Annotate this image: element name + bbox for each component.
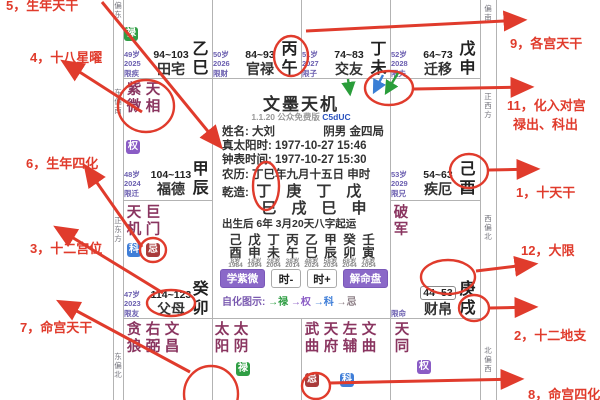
stem: 丁 [369,40,388,59]
branch: 申 [458,59,477,78]
palace-name: 福德 [151,181,192,198]
stem: 癸 [191,280,210,299]
ke-badge: 科 [127,243,141,257]
annotation-6-birth-year-sihua: 6，生年四化 [26,153,98,172]
compass-left-3: 正东方 [113,216,123,243]
palace-name: 交友 [329,61,369,78]
grid-line [480,0,481,400]
palace-name: 财帛 [418,301,458,318]
branch: 酉 [458,179,477,198]
compass-left-1: 偏东 [113,1,123,19]
palace-cell-jie[interactable]: 53岁2029限兄 54~63疾厄 己酉 [391,160,477,198]
annotation-5-birth-year-stem: 5，生年天干 [6,0,78,14]
four-pillars-branches: 巳戌巳申 [254,197,374,218]
learn-ziwei-button[interactable]: 学紫微 [220,269,265,288]
palace-name: 迁移 [418,61,458,78]
annotation-11-transform-out-line2: 禄出、科出 [513,114,578,133]
grid-line [390,200,480,201]
annotation-1-ten-stems: 1，十天干 [516,182,575,201]
palace-name: 疾厄 [418,181,458,198]
stars-zi: 武曲天府左辅文曲 [304,322,377,356]
interpret-chart-button[interactable]: 解命盘 [343,269,388,288]
legend-quan: →权 [291,297,311,308]
compass-right-4: 北偏西 [483,346,493,373]
palace-cell-fude[interactable]: 48岁2024限迁 104~113福德 甲辰 [124,160,210,198]
stem: 乙 [191,40,210,59]
legend-ji: →忌 [336,297,356,308]
grid-line [123,78,480,79]
stars-chou: 太阳太阴 [214,322,249,356]
grid-line [301,318,302,400]
stem: 戊 [458,40,477,59]
stars-yin: 贪狼右弼文昌 [126,322,180,356]
compass-left-2: 东偏南 [113,88,123,115]
legend-lu: →禄 [268,297,288,308]
branch: 辰 [191,179,210,198]
stem: 己 [458,160,477,179]
ziwei-astrology-screen: 偏东 东偏南 正东方 东偏北 偏南 正西方 西偏北 北偏西 49岁2025限疾 … [0,0,600,400]
hour-minus-button[interactable]: 时- [271,269,301,288]
palace-cell-caibo[interactable]: 限命 44~53财帛 庚戌 [391,280,477,318]
annotation-7-life-palace-stem: 7，命宫天干 [20,317,92,336]
luck-years-row: 19841994200420142024203420442054 [226,262,378,269]
palace-cell-guanlu[interactable]: 50岁2026限财 84~93官禄 丙午 [213,40,299,78]
annotation-4-eighteen-stars: 4，十八星曜 [30,47,102,66]
palace-name: 父母 [151,301,192,318]
palace-cell-tianzhai[interactable]: 49岁2025限疾 94~103田宅 乙巳 [124,40,210,78]
stars-chen: 紫微天相 [126,82,161,116]
annotation-12-decade-limit: 12，大限 [521,240,574,259]
stars-mao: 天机巨门 [126,205,161,239]
palace-name: 田宅 [151,61,191,78]
annotation-11-transform-out-line1: 11，化入对宫 [507,95,586,114]
ji-badge: 忌 [146,243,160,257]
lu-badge: 禄 [124,27,138,41]
branch: 未 [369,59,388,78]
grid-line [113,0,114,400]
stars-xu: 破军 [393,205,409,239]
hour-plus-button[interactable]: 时+ [307,269,337,288]
grid-line [123,200,212,201]
compass-right-1: 偏南 [483,4,493,22]
ke-badge: 科 [340,373,354,387]
annotation-3-twelve-palaces: 3，十二宫位 [30,238,102,257]
grid-line [496,0,497,400]
version-line: 1.1.20 公众免费版 C5dUC [212,111,390,123]
annotation-9-palace-stems: 9，各宫天干 [510,33,582,52]
branch: 午 [280,59,299,78]
quan-badge: 权 [126,140,140,154]
compass-left-4: 东偏北 [113,352,123,379]
compass-right-2: 正西方 [483,92,493,119]
clock-time-row: 钟表时间: 1977-10-27 15:30 [222,151,366,167]
palace-cell-qianyi[interactable]: 52岁2028限夫 64~73迁移 戊申 [391,40,477,78]
palace-cell-fumu[interactable]: 47岁2023限友 114~123父母 癸卯 [124,280,210,318]
stars-hai: 天同 [394,322,410,356]
stem: 丙 [280,40,299,59]
ji-badge: 忌 [305,373,319,387]
grid-line [123,318,480,319]
self-transform-legend: 自化图示: →禄 →权 →科 →忌 [222,293,356,308]
annotation-8-life-palace-sihua: 8，命宫四化 [528,384,600,400]
quan-badge: 权 [417,360,431,374]
stem: 甲 [191,160,210,179]
current-decade-range: 44~53 [420,286,456,300]
compass-right-3: 西偏北 [483,214,493,241]
branch: 巳 [191,59,210,78]
version-code: C5dUC [322,112,350,122]
palace-cell-jiaoyou[interactable]: 51岁2027限子 74~83交友 丁未 [302,40,388,78]
lu-badge: 禄 [236,362,250,376]
stem: 庚 [458,280,477,299]
branch: 卯 [191,299,210,318]
legend-ke: →科 [314,297,334,308]
palace-name: 官禄 [240,61,280,78]
branch: 戌 [458,299,477,318]
annotation-2-twelve-branches: 2，十二地支 [514,325,586,344]
